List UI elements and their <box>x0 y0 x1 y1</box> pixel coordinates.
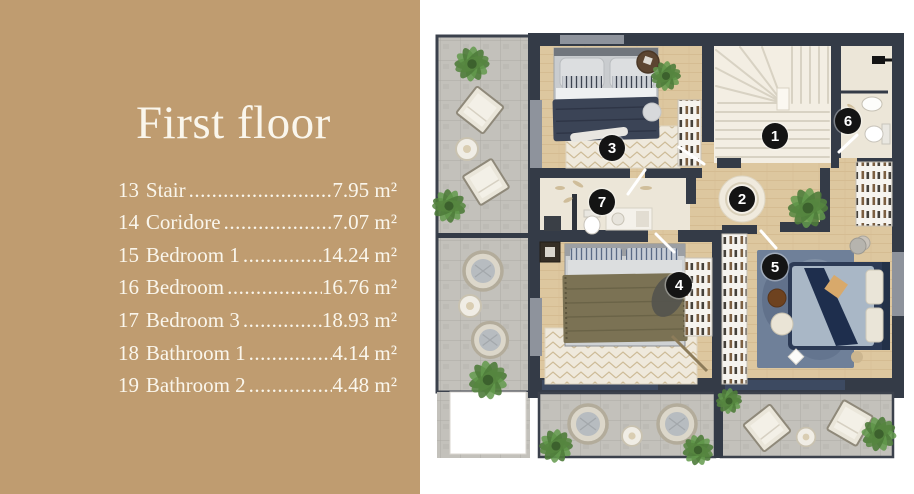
room-list-item: 13 Stair ...............................… <box>118 174 397 207</box>
bedroom-furniture <box>540 242 712 384</box>
room-list-item: 19 Bathroom 2 ..........................… <box>118 369 397 402</box>
room-number: 16 <box>118 271 139 304</box>
dot-leader: ........................................… <box>246 369 333 402</box>
room-area: 18.93 m² <box>322 304 397 337</box>
room-number: 17 <box>118 304 139 337</box>
bottom-terrace <box>538 380 904 473</box>
screenshot-root: First floor 13 Stair ...................… <box>0 0 914 494</box>
room-list-item: 14 Coridore ............................… <box>118 206 397 239</box>
room-list-item: 15 Bedroom 1 ...........................… <box>118 239 397 272</box>
room-number: 19 <box>118 369 139 402</box>
room-number: 18 <box>118 337 139 370</box>
room-area: 16.76 m² <box>322 271 397 304</box>
room-area: 14.24 m² <box>322 239 397 272</box>
room-label: Bedroom 3 <box>146 304 240 337</box>
room-area: 4.48 m² <box>332 369 397 402</box>
room-area: 7.07 m² <box>332 206 397 239</box>
room-list-item: 17 Bedroom 3 ...........................… <box>118 304 397 337</box>
left-terrace <box>426 36 530 458</box>
room-label: Bedroom <box>146 271 224 304</box>
room-label: Bedroom 1 <box>146 239 240 272</box>
room-label: Coridore <box>146 206 221 239</box>
floor-plan: 1 2 3 4 5 6 7 <box>420 0 914 494</box>
floor-plan-drawing <box>420 0 914 494</box>
room-list-item: 16 Bedroom .............................… <box>118 271 397 304</box>
room-label: Bathroom 2 <box>146 369 246 402</box>
floor-legend-panel: First floor 13 Stair ...................… <box>0 0 420 494</box>
dot-leader: ........................................… <box>221 206 333 239</box>
dot-leader: ........................................… <box>186 174 333 207</box>
room-number: 13 <box>118 174 139 207</box>
dot-leader: ........................................… <box>224 271 322 304</box>
room-label: Bathroom 1 <box>146 337 246 370</box>
room-list-item: 18 Bathroom 1 ..........................… <box>118 337 397 370</box>
room-area: 7.95 m² <box>332 174 397 207</box>
dot-leader: ........................................… <box>246 337 333 370</box>
room-area: 4.14 m² <box>332 337 397 370</box>
page-title: First floor <box>136 98 397 150</box>
room-label: Stair <box>146 174 186 207</box>
room-number: 15 <box>118 239 139 272</box>
room-number: 14 <box>118 206 139 239</box>
dot-leader: ........................................… <box>240 239 322 272</box>
room-list: 13 Stair ...............................… <box>118 174 397 402</box>
dot-leader: ........................................… <box>240 304 322 337</box>
